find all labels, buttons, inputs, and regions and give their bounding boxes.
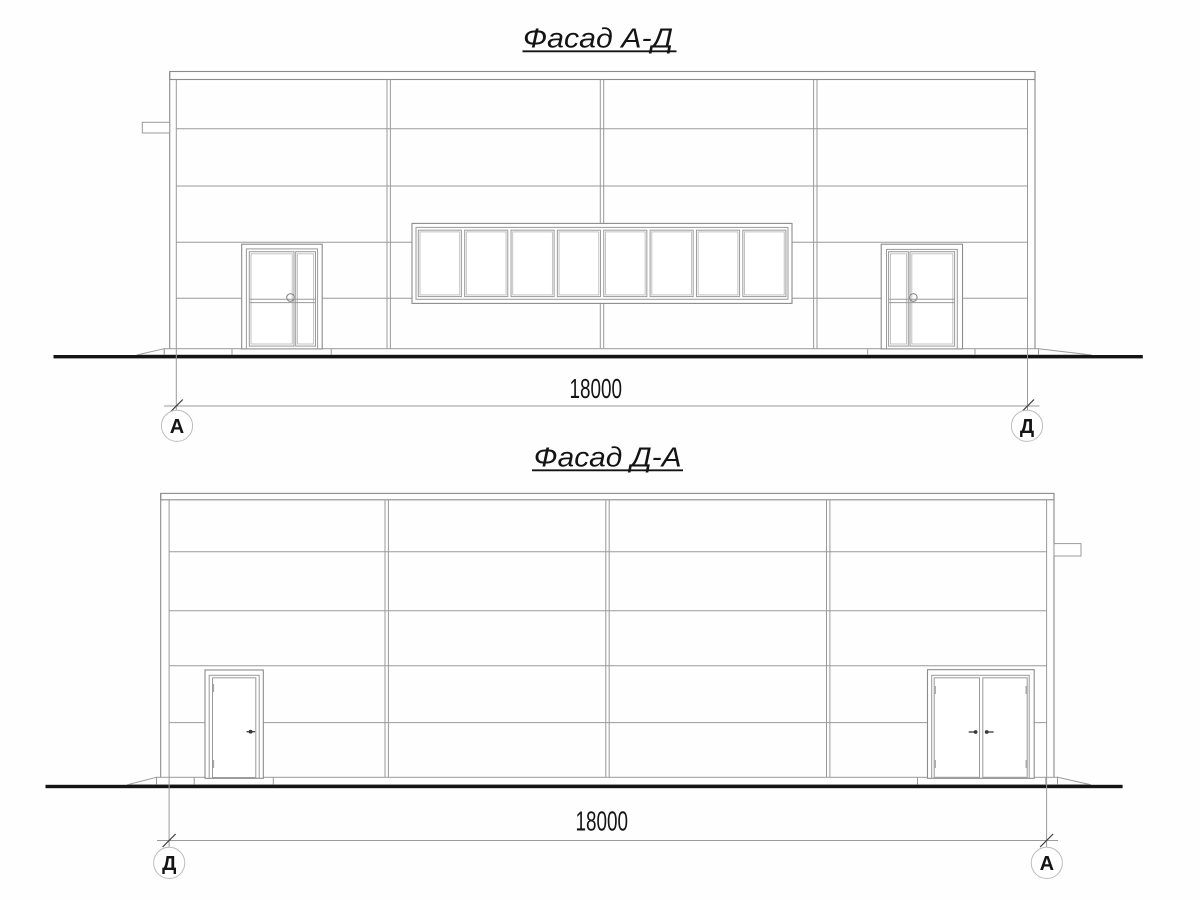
svg-text:18000: 18000 [575,806,628,836]
svg-text:Фасад Д-А: Фасад Д-А [534,443,682,474]
svg-text:Д: Д [1020,416,1034,438]
svg-text:А: А [1040,853,1054,875]
svg-text:Фасад А-Д: Фасад А-Д [523,24,673,54]
svg-text:Д: Д [162,853,176,875]
svg-text:18000: 18000 [569,373,622,403]
svg-text:А: А [170,416,184,438]
